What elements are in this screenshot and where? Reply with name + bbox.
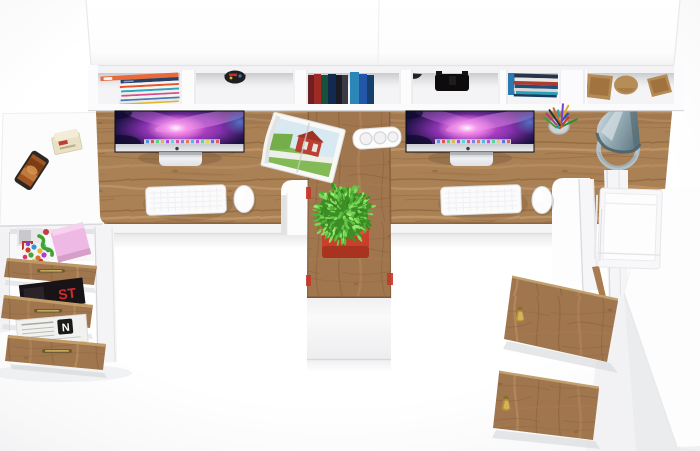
svg-text:N: N	[61, 322, 70, 335]
svg-text:ST: ST	[57, 284, 77, 302]
